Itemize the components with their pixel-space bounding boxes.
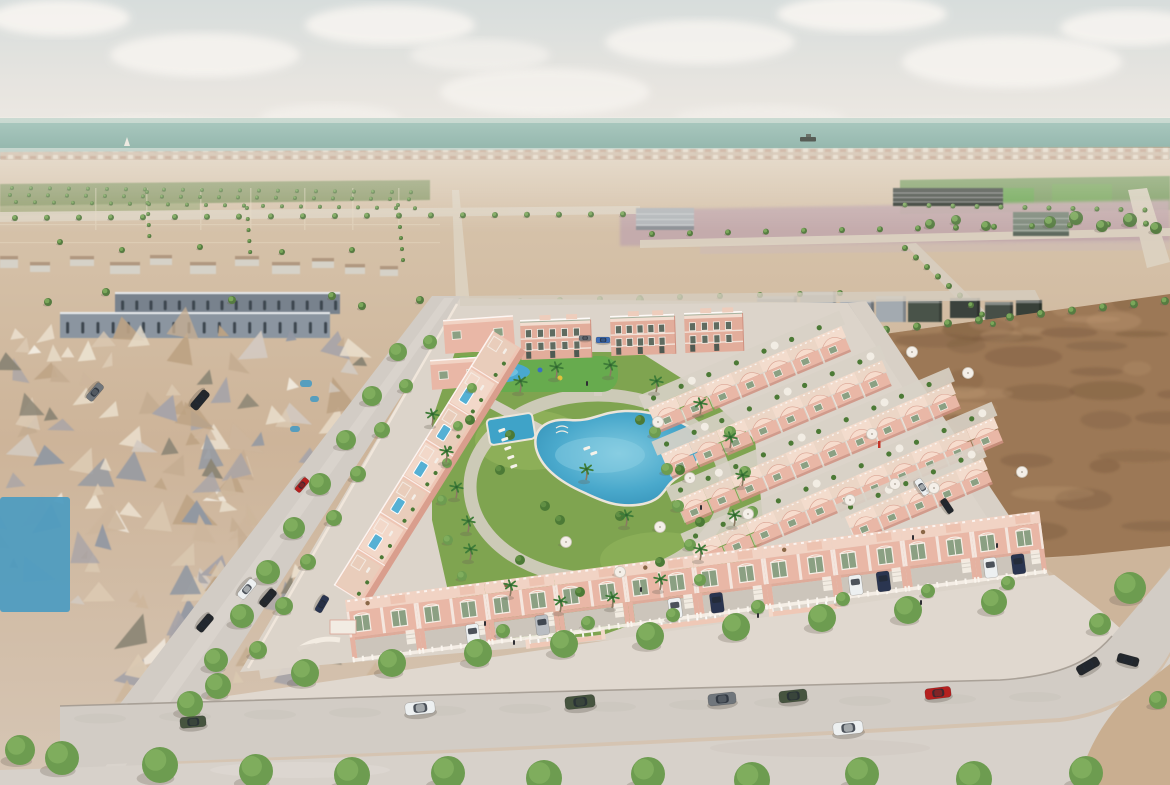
bush [695,517,705,527]
person [757,613,759,618]
person [996,543,998,548]
person [586,381,588,386]
ground-shade [710,739,930,757]
distant-house [150,255,172,265]
distant-house [30,262,50,272]
cloud [440,68,650,116]
road-wear [839,696,891,706]
cloud [110,33,300,77]
dirt-patch [985,346,1063,367]
cloud [902,36,1122,88]
distant-house [235,256,259,266]
bush [615,511,625,521]
aerial-render-image [0,0,1170,785]
distant-house [0,256,18,268]
bush [515,555,525,565]
dirt-patch [1069,381,1144,400]
distant-house [190,262,216,274]
bush [465,415,475,425]
person [513,640,515,645]
distant-house [110,262,140,274]
dirt-patch [1070,367,1123,376]
dirt-patch [1089,459,1120,473]
distant-house [345,264,365,274]
car [595,337,610,345]
ship-superstructure [806,134,811,137]
dirt-patch [972,334,1043,342]
bush [555,515,565,525]
cloud [410,39,550,71]
existing-building [950,298,980,318]
person [920,600,922,605]
play-equipment-2 [538,368,543,373]
bush [635,415,645,425]
dirt-patch [1123,361,1151,375]
existing-pool [310,396,319,402]
dirt-patch [1115,331,1169,337]
road-wear [74,714,126,724]
sea-haze [0,117,1170,123]
distant-house [70,256,94,266]
entrance-hut [330,620,356,634]
dirt-patch [1011,486,1094,500]
existing-pool [0,497,70,612]
cloud [605,20,795,64]
bush [495,465,505,475]
person [700,505,702,510]
dirt-patch [1000,453,1052,467]
existing-pool [300,380,312,387]
person [640,587,642,592]
bush [655,557,665,567]
pool-shallow [555,437,645,473]
apartment-block [684,307,744,353]
apartment-block [610,310,676,356]
dirt-patch [1041,327,1098,337]
bush [540,501,550,511]
atmospheric-haze [0,148,1170,233]
distant-house [272,262,300,274]
dirt-patch [1080,411,1131,429]
existing-building [908,300,942,322]
person [912,535,914,540]
car [578,335,591,342]
dirt-patch [1063,316,1120,323]
dirt-patch [1002,384,1074,401]
distant-house [380,266,398,276]
dirt-patch [1066,341,1128,351]
bush [575,587,585,597]
cargo-ship [800,137,816,142]
existing-pool [290,426,300,432]
cloud [305,5,475,45]
flag-banner [878,441,881,448]
distant-house [312,258,334,268]
road-wear [499,704,551,714]
person [484,621,486,626]
road-wear [1009,692,1061,702]
road-wear [244,710,296,720]
road-wear [329,708,381,718]
bush [675,465,685,475]
scene-svg [0,0,1170,785]
